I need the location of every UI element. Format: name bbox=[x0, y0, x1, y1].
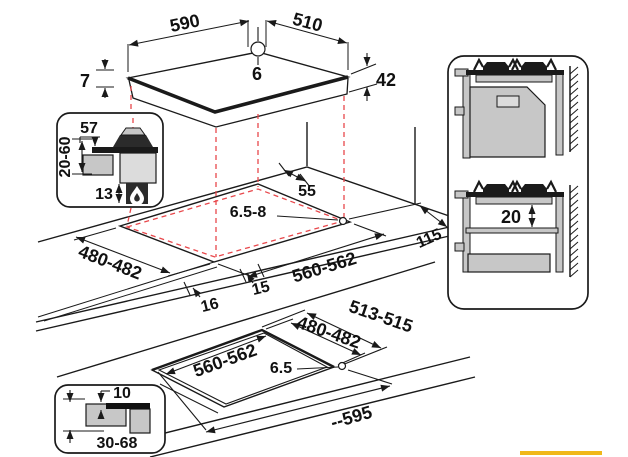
installation-diagram-page: 55 6.5-8 480-482 560-562 115 15 16 bbox=[0, 0, 628, 457]
flush-hole-marker bbox=[339, 363, 346, 370]
oven-vent bbox=[497, 96, 519, 107]
fixing-hole-marker bbox=[340, 218, 347, 225]
rear-gap-label: 55 bbox=[298, 183, 316, 200]
burner-body bbox=[113, 135, 153, 147]
burner bbox=[483, 62, 509, 70]
worktop-thickness-label: 20-60 bbox=[57, 136, 74, 177]
recess-width-label: --595 bbox=[328, 402, 374, 433]
cutout-depth-label: 480-482 bbox=[76, 241, 145, 283]
hob-profile bbox=[466, 192, 564, 197]
hob-top-view: 590 510 6 7 42 bbox=[80, 9, 396, 127]
dim-side-gap bbox=[349, 203, 447, 227]
flush-hole-label: 6.5 bbox=[270, 360, 292, 377]
rim-thickness-label: 7 bbox=[80, 71, 90, 91]
dim-rim-thickness bbox=[96, 59, 114, 98]
gas-connection-stub bbox=[455, 243, 464, 251]
fixing-hole-label: 6.5-8 bbox=[230, 204, 267, 221]
burner-detail-inset: 57 20-60 13 bbox=[57, 113, 163, 207]
hob-depth-label: 510 bbox=[290, 9, 324, 36]
burner bbox=[521, 62, 547, 70]
worktop-section bbox=[83, 155, 113, 175]
cabinet-side-views: 20 bbox=[448, 56, 588, 309]
hob-installation-diagram: 55 6.5-8 480-482 560-562 115 15 16 bbox=[0, 0, 628, 457]
front-offset-label: 15 bbox=[250, 278, 271, 299]
leader-fixing-hole bbox=[277, 216, 338, 220]
flush-detail-inset: 10 30-68 bbox=[55, 385, 165, 453]
side-view-oven bbox=[455, 60, 578, 158]
intermediate-shelf bbox=[466, 228, 558, 233]
worktop-recess-section bbox=[130, 409, 150, 433]
gas-inlet-circle bbox=[251, 42, 265, 56]
recess-step-label: 10 bbox=[113, 385, 131, 402]
hob-profile bbox=[466, 70, 564, 75]
brand-accent-bar bbox=[520, 451, 602, 455]
bottom-clearance-label: 13 bbox=[95, 186, 113, 203]
burner-height-label: 57 bbox=[80, 120, 98, 137]
front-gap-label: 16 bbox=[199, 295, 220, 316]
dim-body-height bbox=[349, 53, 377, 101]
cutout-width-label: 560-562 bbox=[290, 248, 359, 286]
hob-glass-surface bbox=[128, 52, 348, 112]
flush-width-label: 560-562 bbox=[190, 340, 259, 381]
side-view-drawer: 20 bbox=[455, 182, 578, 277]
hob-edge-section bbox=[106, 403, 150, 409]
hob-width-label: 590 bbox=[168, 10, 202, 36]
burner bbox=[521, 184, 547, 192]
shelf-gap-label: 20 bbox=[501, 207, 521, 227]
gas-inlet-label: 6 bbox=[252, 64, 262, 84]
burner-housing bbox=[120, 153, 156, 183]
body-height-label: 42 bbox=[376, 70, 396, 90]
worktop-range-label: 30-68 bbox=[97, 435, 138, 452]
burner bbox=[483, 184, 509, 192]
flush-depth-label: 480-482 bbox=[294, 312, 363, 352]
drawer bbox=[468, 254, 550, 272]
gas-connection-stub bbox=[455, 107, 464, 115]
hob-surface-section bbox=[92, 147, 158, 153]
